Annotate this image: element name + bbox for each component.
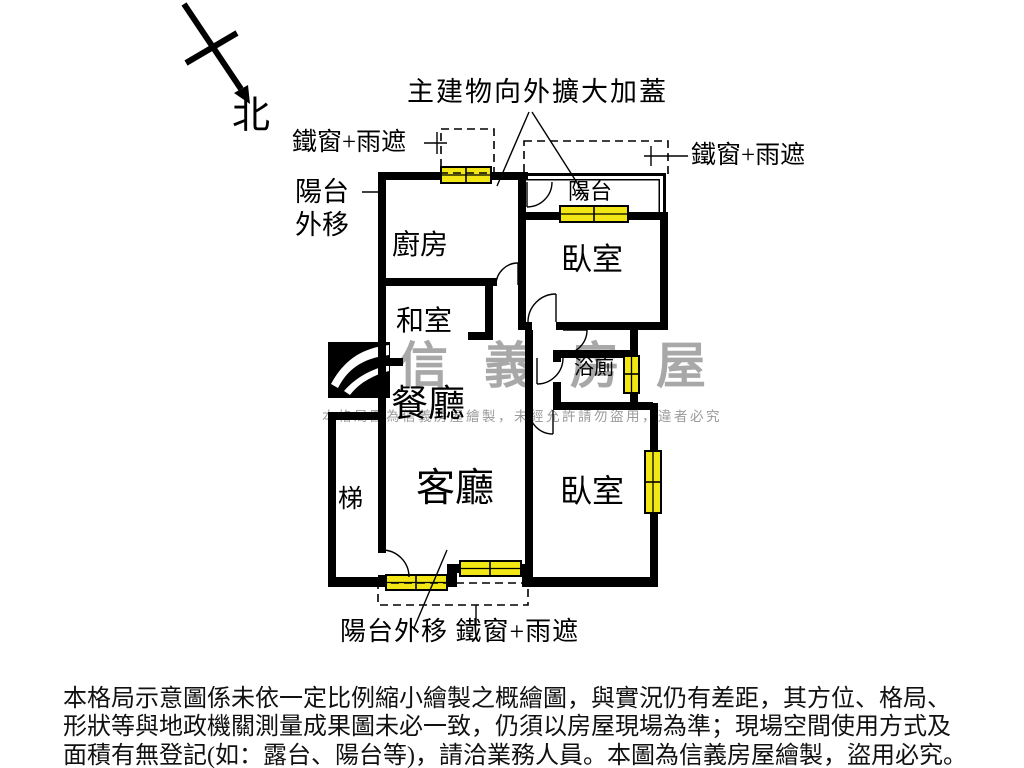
annotation-bottom-note: 陽台外移 鐵窗+雨遮 — [340, 618, 579, 647]
annotation-iron-window-left: 鐵窗+雨遮 — [292, 129, 406, 157]
walls-group — [328, 172, 668, 587]
annotation-main-expansion: 主建物向外擴大加蓋 — [407, 78, 668, 108]
door-arc — [528, 294, 556, 322]
door-arc — [382, 550, 409, 577]
annotation-balcony-moved-line2: 外移 — [295, 209, 349, 242]
room-label-tatami: 和室 — [396, 307, 452, 338]
door-arc — [527, 182, 552, 207]
room-label-kitchen: 廚房 — [392, 231, 448, 262]
north-label: 北 — [232, 96, 270, 138]
floorplan-page: 信義房屋 本格局圖為信義房屋繪製，未經允許請勿盜用，違者必究 — [0, 0, 1024, 768]
room-label-dining: 餐廳 — [391, 385, 465, 426]
north-arrow-icon — [184, 4, 250, 104]
window-symbol — [441, 167, 491, 183]
disclaimer-line3: 面積有無登記(如：露台、陽台等)，請洽業務人員。本圖為信義房屋繪製，盜用必究。 — [63, 742, 967, 768]
annotation-balcony-moved-line1: 陽台 — [295, 176, 349, 209]
floorplan-drawing — [0, 0, 1024, 768]
annotation-balcony-moved: 陽台 外移 — [295, 176, 349, 242]
disclaimer-line1: 本格局示意圖係未依一定比例縮小繪製之概繪圖，與實況仍有差距，其方位、格局、 — [63, 685, 967, 713]
disclaimer-text: 本格局示意圖係未依一定比例縮小繪製之概繪圖，與實況仍有差距，其方位、格局、 形狀… — [63, 685, 967, 768]
room-label-balcony: 陽台 — [568, 180, 612, 204]
window-symbol — [624, 356, 639, 393]
disclaimer-line2: 形狀等與地政機關測量成果圖未必一致，仍須以房屋現場為準；現場空間使用方式及 — [63, 713, 967, 741]
window-symbol — [460, 561, 521, 576]
room-label-bath: 浴廁 — [574, 357, 614, 379]
room-label-living: 客廳 — [416, 468, 494, 511]
annotation-iron-window-right: 鐵窗+雨遮 — [691, 142, 805, 170]
door-arc — [496, 263, 518, 285]
window-symbol — [645, 451, 661, 513]
room-label-stairs: 梯 — [338, 486, 363, 514]
window-symbol — [560, 206, 628, 222]
room-label-bedroom-bottom: 臥室 — [560, 474, 624, 509]
room-label-bedroom-top: 臥室 — [561, 243, 623, 277]
